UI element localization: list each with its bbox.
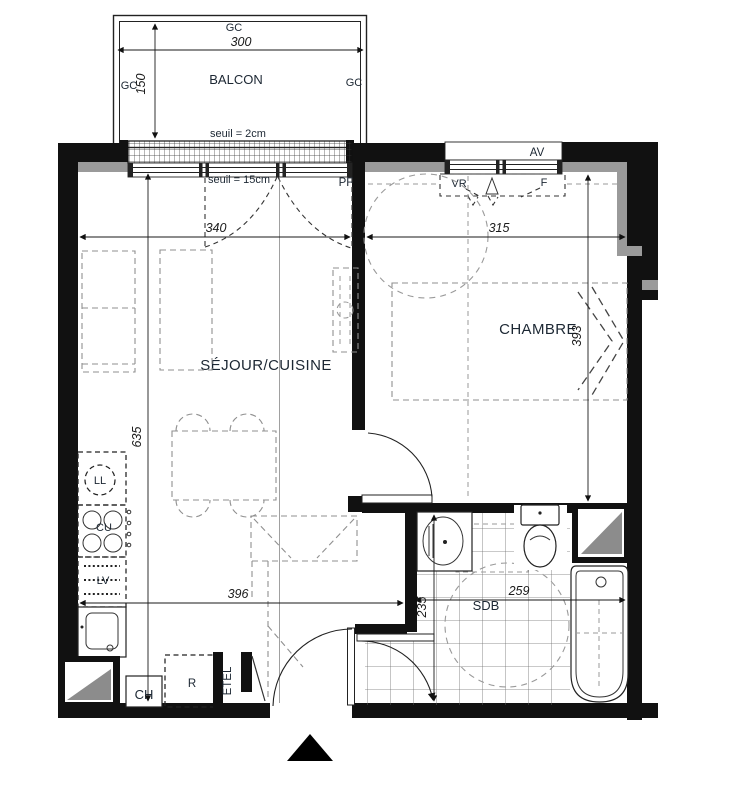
insulation-return (617, 246, 642, 256)
dim-340: 340 (206, 221, 227, 235)
bedroom-window-mullion (496, 160, 500, 174)
water-heater-label: CH (135, 687, 154, 702)
wc-cistern (521, 505, 559, 525)
entry-closet (251, 516, 357, 561)
storage-label: R (188, 678, 196, 690)
chair (176, 414, 210, 431)
entrance-door-leaf (348, 628, 355, 705)
awning-tag: AV (530, 147, 545, 159)
turning-circle-bedroom (364, 174, 488, 298)
living-bay-window: seuil = 15cm PF (128, 141, 353, 703)
dining-table (172, 431, 276, 500)
awning-box (445, 142, 562, 160)
party-wall-stub (642, 280, 658, 290)
dim-259: 259 (508, 584, 530, 598)
bathroom-door-leaf (357, 634, 434, 641)
wall-bathroom-door-stub (355, 624, 407, 634)
wall-bottom-right (352, 703, 658, 718)
bedroom-window: AV VR F (440, 142, 565, 205)
wall-top-middle (352, 143, 445, 165)
chair (230, 414, 264, 431)
dim-393: 393 (570, 326, 584, 347)
insulation-top-left (78, 162, 128, 172)
bedroom-label: CHAMBRE (499, 321, 577, 338)
cooktop-label: CU (96, 522, 112, 534)
kitchen: LL CU LV (78, 452, 131, 657)
dim-315: 315 (489, 221, 510, 235)
floor-plan: GC 300 150 GC GC BALCON seuil = 2cm (0, 0, 740, 800)
shutter-tag: VR (451, 178, 466, 190)
bay-window-grille (128, 141, 352, 163)
etel-wall-right (241, 652, 252, 692)
living-threshold-label: seuil = 15cm (208, 174, 270, 186)
etel-label: ETEL (222, 666, 234, 695)
bathroom: SDB (357, 503, 630, 705)
partition-cap (348, 496, 362, 512)
cabinet (160, 250, 212, 370)
balcony: GC 300 150 GC GC BALCON seuil = 2cm (114, 16, 367, 148)
bed (392, 283, 627, 400)
dishwasher-label: LV (97, 575, 110, 587)
insulation-bedroom-topwest (365, 162, 445, 172)
dim-235: 235 (415, 597, 429, 619)
bay-window-jamb-left (120, 140, 128, 165)
dim-635: 635 (130, 427, 144, 448)
etel-door (252, 656, 265, 701)
balcony-gc-right-label: GC (346, 77, 363, 89)
chair (176, 500, 210, 517)
sofa (82, 251, 135, 372)
entrance-arrow (287, 734, 333, 761)
balcony-room-label: BALCON (209, 72, 262, 87)
living-room-label: SÉJOUR/CUISINE (200, 357, 331, 374)
bedroom-door-leaf (362, 495, 432, 503)
insulation-bedroom-right (617, 162, 627, 252)
washing-machine-label: LL (94, 475, 106, 487)
chair (230, 500, 264, 517)
window-opening-symbol (486, 178, 498, 194)
wc-bowl (524, 525, 556, 567)
bay-window-mullion (276, 163, 280, 177)
dim-396: 396 (228, 587, 249, 601)
door-swing-pf-left (205, 177, 277, 247)
window-tag: F (541, 177, 548, 189)
balcony-dim-width: 300 (231, 35, 252, 49)
balcony-gc-left-label: GC (121, 80, 138, 92)
balcony-gc-top-label: GC (226, 22, 243, 34)
entrance-door-swing (273, 629, 352, 706)
bay-window-mullion (199, 163, 203, 177)
floor-plan-drawing: GC 300 150 GC GC BALCON seuil = 2cm (0, 0, 740, 800)
wall-top-left (58, 143, 128, 163)
wall-left (58, 143, 78, 718)
wall-right-upper (627, 142, 658, 300)
bedroom-door-swing (368, 433, 432, 497)
pf-window-tag: PF (339, 177, 354, 189)
balcony-threshold-label: seuil = 2cm (210, 128, 266, 140)
